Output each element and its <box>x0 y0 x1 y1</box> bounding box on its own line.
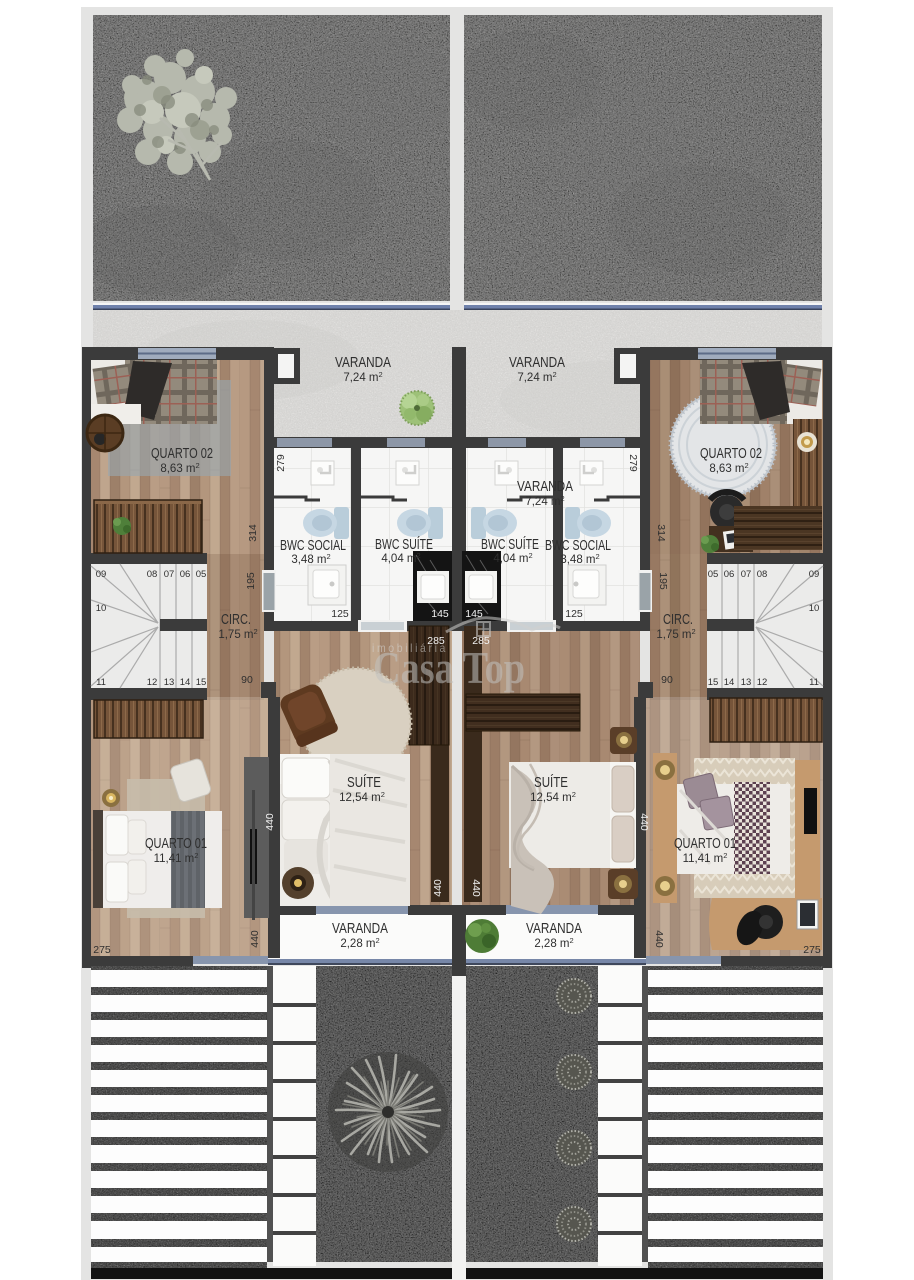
svg-text:125: 125 <box>565 608 583 620</box>
svg-text:09: 09 <box>96 569 107 580</box>
svg-text:440: 440 <box>432 879 444 897</box>
svg-text:14: 14 <box>724 677 735 688</box>
svg-text:VARANDA: VARANDA <box>509 355 565 371</box>
svg-text:SUÍTE: SUÍTE <box>347 774 381 791</box>
svg-text:BWC SOCIAL: BWC SOCIAL <box>545 538 611 554</box>
svg-text:VARANDA: VARANDA <box>526 921 582 937</box>
svg-text:8,63 m2: 8,63 m2 <box>160 461 199 475</box>
svg-text:VARANDA: VARANDA <box>332 921 388 937</box>
svg-text:Casa Top: Casa Top <box>373 642 525 693</box>
svg-text:13: 13 <box>164 677 175 688</box>
svg-text:07: 07 <box>741 569 752 580</box>
svg-text:12: 12 <box>757 677 768 688</box>
svg-text:7,24 m2: 7,24 m2 <box>517 370 556 384</box>
svg-text:QUARTO 02: QUARTO 02 <box>151 446 213 462</box>
svg-text:90: 90 <box>661 674 673 686</box>
svg-text:08: 08 <box>757 569 768 580</box>
svg-text:12: 12 <box>147 677 158 688</box>
svg-text:2,28 m2: 2,28 m2 <box>340 936 379 950</box>
svg-text:8,63 m2: 8,63 m2 <box>709 461 748 475</box>
svg-text:285: 285 <box>427 635 445 647</box>
svg-text:11,41 m2: 11,41 m2 <box>683 851 728 865</box>
svg-text:90: 90 <box>241 674 253 686</box>
svg-text:4,04 m2: 4,04 m2 <box>381 551 420 565</box>
svg-text:279: 279 <box>275 454 287 472</box>
svg-text:3,48 m2: 3,48 m2 <box>291 552 330 566</box>
svg-text:CIRC.: CIRC. <box>221 612 251 628</box>
svg-text:2,28 m2: 2,28 m2 <box>534 936 573 950</box>
svg-text:10: 10 <box>96 603 107 614</box>
svg-text:QUARTO 02: QUARTO 02 <box>700 446 762 462</box>
svg-text:12,54 m2: 12,54 m2 <box>530 790 576 804</box>
svg-text:11,41 m2: 11,41 m2 <box>154 851 199 865</box>
svg-text:275: 275 <box>93 944 111 956</box>
svg-text:195: 195 <box>657 572 669 590</box>
svg-text:279: 279 <box>627 454 639 472</box>
svg-text:12,54 m2: 12,54 m2 <box>339 790 385 804</box>
svg-text:09: 09 <box>809 569 820 580</box>
svg-text:440: 440 <box>638 813 650 831</box>
svg-text:4,04 m2: 4,04 m2 <box>493 551 532 565</box>
svg-text:10: 10 <box>809 603 820 614</box>
svg-text:440: 440 <box>249 930 261 948</box>
svg-text:275: 275 <box>803 944 821 956</box>
svg-text:06: 06 <box>180 569 191 580</box>
svg-text:1,75 m2: 1,75 m2 <box>218 627 257 641</box>
svg-text:15: 15 <box>708 677 719 688</box>
svg-text:05: 05 <box>196 569 207 580</box>
svg-text:15: 15 <box>196 677 207 688</box>
svg-text:SUÍTE: SUÍTE <box>534 774 568 791</box>
svg-text:14: 14 <box>180 677 191 688</box>
svg-text:285: 285 <box>472 635 490 647</box>
svg-text:VARANDA: VARANDA <box>335 355 391 371</box>
svg-text:440: 440 <box>653 930 665 948</box>
svg-text:440: 440 <box>264 813 276 831</box>
svg-text:7,24 m2: 7,24 m2 <box>343 370 382 384</box>
svg-text:1,75 m2: 1,75 m2 <box>656 627 695 641</box>
svg-text:BWC SUÍTE: BWC SUÍTE <box>375 536 433 553</box>
svg-text:13: 13 <box>741 677 752 688</box>
svg-text:07: 07 <box>164 569 175 580</box>
svg-text:440: 440 <box>470 879 482 897</box>
svg-text:06: 06 <box>724 569 735 580</box>
svg-text:QUARTO 01: QUARTO 01 <box>145 836 207 852</box>
svg-text:145: 145 <box>465 608 483 620</box>
svg-text:7,24 m2: 7,24 m2 <box>525 494 564 508</box>
svg-text:125: 125 <box>331 608 349 620</box>
svg-text:QUARTO 01: QUARTO 01 <box>674 836 736 852</box>
svg-text:3,48 m2: 3,48 m2 <box>560 552 599 566</box>
svg-text:CIRC.: CIRC. <box>663 612 693 628</box>
svg-text:08: 08 <box>147 569 158 580</box>
svg-text:11: 11 <box>809 677 819 688</box>
svg-text:VARANDA: VARANDA <box>517 479 573 495</box>
svg-text:314: 314 <box>655 524 667 542</box>
svg-text:195: 195 <box>245 572 257 590</box>
svg-text:314: 314 <box>247 524 259 542</box>
svg-text:05: 05 <box>708 569 719 580</box>
svg-text:145: 145 <box>431 608 449 620</box>
svg-text:BWC SOCIAL: BWC SOCIAL <box>280 538 346 554</box>
svg-text:11: 11 <box>96 677 106 688</box>
